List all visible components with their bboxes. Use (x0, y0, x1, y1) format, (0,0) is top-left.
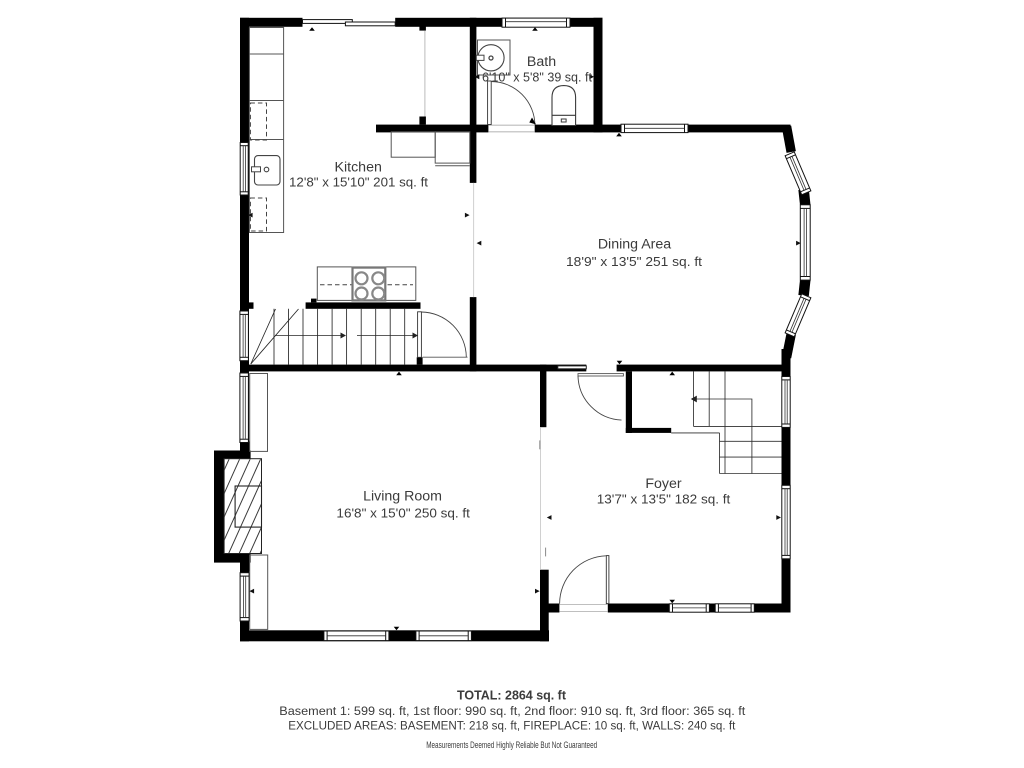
svg-text:18'9" x 13'5" 251 sq. ft: 18'9" x 13'5" 251 sq. ft (566, 254, 702, 269)
svg-text:6'10" x 5'8" 39 sq. ft: 6'10" x 5'8" 39 sq. ft (482, 69, 592, 84)
svg-text:Living Room: Living Room (363, 488, 442, 504)
svg-text:Dining Area: Dining Area (598, 236, 671, 252)
svg-text:12'8" x 15'10" 201 sq. ft: 12'8" x 15'10" 201 sq. ft (289, 174, 428, 189)
svg-text:Measurements Deemed Highly Rel: Measurements Deemed Highly Reliable But … (426, 740, 597, 750)
svg-text:Foyer: Foyer (645, 476, 682, 492)
svg-text:TOTAL: 2864 sq. ft: TOTAL: 2864 sq. ft (457, 688, 567, 703)
svg-text:EXCLUDED AREAS: BASEMENT: 218: EXCLUDED AREAS: BASEMENT: 218 sq. ft, FI… (288, 719, 736, 733)
svg-text:Kitchen: Kitchen (335, 159, 382, 175)
svg-text:13'7" x 13'5" 182 sq. ft: 13'7" x 13'5" 182 sq. ft (597, 491, 731, 506)
svg-text:Bath: Bath (527, 54, 556, 70)
svg-text:Basement 1: 599 sq. ft, 1st fl: Basement 1: 599 sq. ft, 1st floor: 990 s… (279, 704, 746, 718)
svg-text:16'8" x 15'0" 250 sq. ft: 16'8" x 15'0" 250 sq. ft (336, 505, 470, 520)
